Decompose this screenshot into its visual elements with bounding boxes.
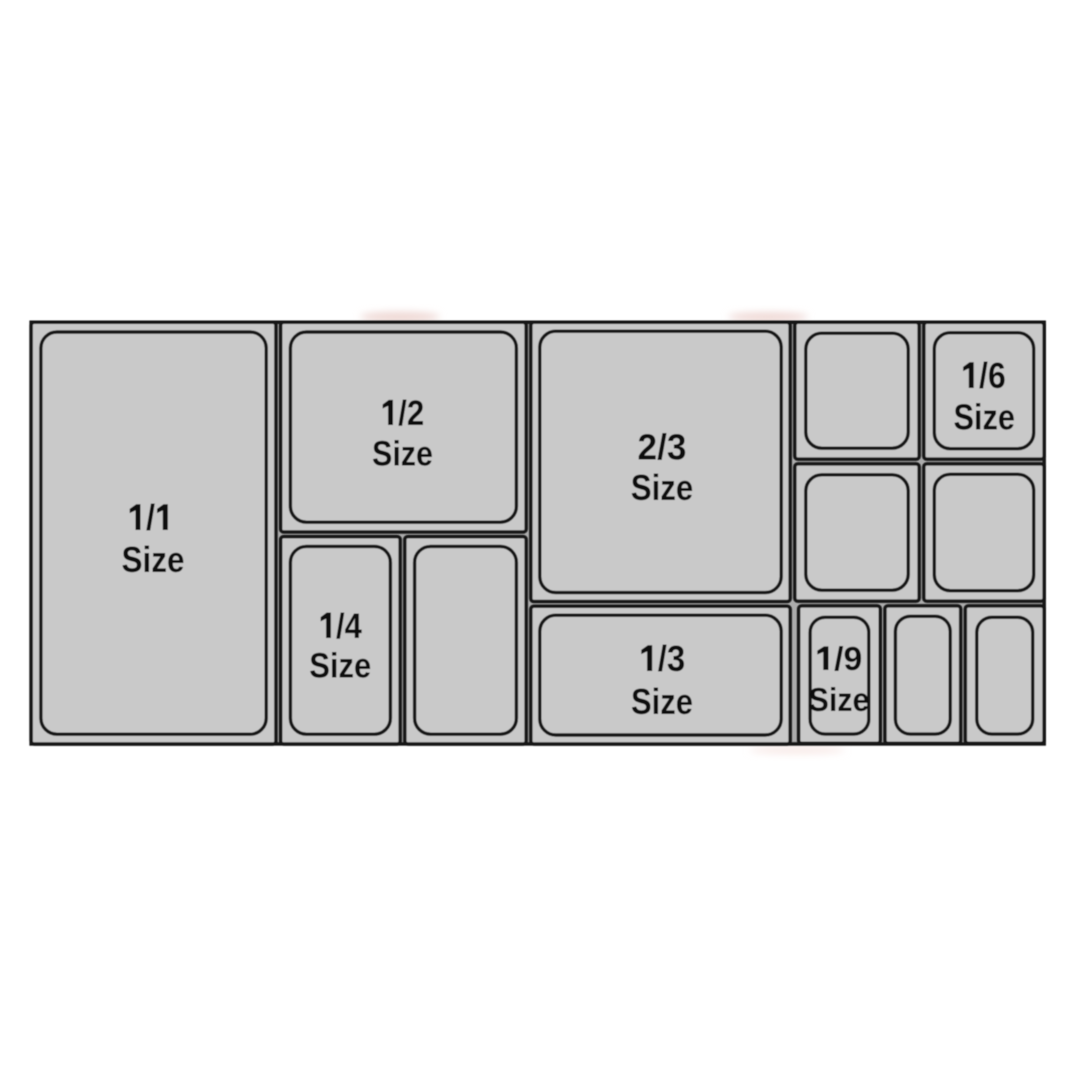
svg-text:/6: /6 [979,355,1006,396]
svg-text:Size: Size [372,435,433,474]
svg-text:Size: Size [631,467,694,508]
svg-text:Size: Size [631,681,693,722]
svg-text:Size: Size [809,681,870,718]
svg-text:Size: Size [953,397,1015,438]
svg-text:Size: Size [122,539,185,580]
svg-text:/3: /3 [658,638,686,679]
svg-text:2/3: 2/3 [638,427,687,468]
svg-text:/9: /9 [834,640,862,677]
svg-text:/2: /2 [398,394,424,433]
svg-text:/: / [146,497,155,538]
svg-text:/4: /4 [336,606,362,646]
svg-text:Size: Size [309,646,371,686]
